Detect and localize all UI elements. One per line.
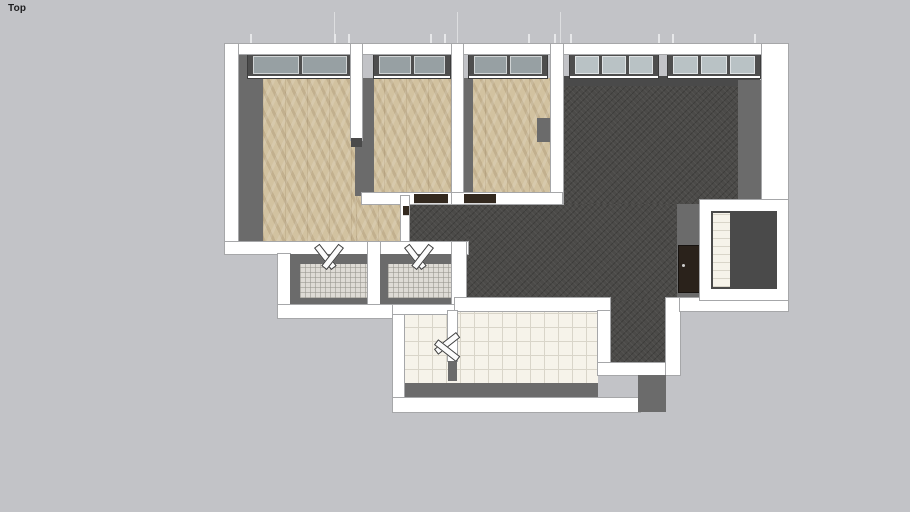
wall-step-south [598, 363, 668, 375]
wall-section-tick [528, 34, 530, 44]
wall-section-tick [430, 34, 432, 44]
wall-jog-hallway [355, 140, 372, 196]
wall-step-east [666, 298, 680, 375]
floor-bedroom-left [263, 78, 356, 242]
guide-line [560, 12, 561, 44]
door-bathroom-right [402, 248, 436, 274]
wall-section-tick [754, 34, 756, 44]
window-living-left [570, 52, 658, 78]
viewport-canvas[interactable]: Top [0, 0, 910, 512]
wall-kitchen-north [455, 298, 610, 311]
window-bedroom-middle [374, 52, 450, 78]
window-bedroom-left [248, 52, 352, 78]
wall-section-tick [348, 34, 350, 44]
wall-kitchen-east [598, 311, 610, 363]
door-jamb-corridor [403, 206, 409, 216]
door-kitchen [430, 330, 456, 364]
floor-living-room [562, 84, 740, 206]
floor-living-tongue [610, 300, 666, 363]
wall-section-tick [554, 34, 556, 44]
wall-section-tick [250, 34, 252, 44]
door-utility-dark [679, 246, 700, 292]
wall-section-tick [658, 34, 660, 44]
wall-section-tick [444, 34, 446, 44]
floor-niche-tile-strip [713, 213, 730, 287]
wall-kitchen-south [393, 398, 640, 412]
wall-hall-corridor [401, 196, 409, 244]
wall-jog-bedroom-right [537, 118, 551, 142]
wall-north [225, 44, 773, 54]
window-bedroom-right [469, 52, 547, 78]
floor-bedroom-middle [362, 78, 452, 193]
floor-living-room-lower [466, 204, 677, 300]
wall-face-living-east [738, 80, 764, 204]
wall-stub-southeast [638, 375, 666, 412]
wall-face-bedroom-left [238, 54, 263, 242]
wall-east [762, 44, 788, 204]
wall-bath-east [452, 242, 466, 305]
guide-line [457, 12, 458, 44]
view-label: Top [8, 3, 26, 14]
wall-kitchen-divider-end [448, 361, 457, 381]
door-header-bedroom-middle [414, 194, 448, 204]
wall-bed2-bed3 [452, 44, 463, 194]
window-living-right [668, 52, 760, 78]
wall-section-tick [672, 34, 674, 44]
wall-face-bedroom-right [463, 78, 473, 193]
door-jamb-bedroom-left [351, 138, 362, 147]
wall-kitchen-northwest [393, 305, 455, 314]
wall-bed1-bed2 [351, 44, 362, 140]
door-bathroom-left [312, 248, 346, 274]
wall-section-tick [570, 34, 572, 44]
wall-west [225, 44, 238, 254]
wall-face-kitchen-south [404, 383, 598, 398]
wall-bed3-living [551, 44, 563, 204]
wall-section-tick [334, 34, 336, 44]
wall-kitchen-west [393, 305, 404, 410]
door-header-bedroom-right [464, 194, 496, 204]
floor-corridor [409, 204, 469, 244]
